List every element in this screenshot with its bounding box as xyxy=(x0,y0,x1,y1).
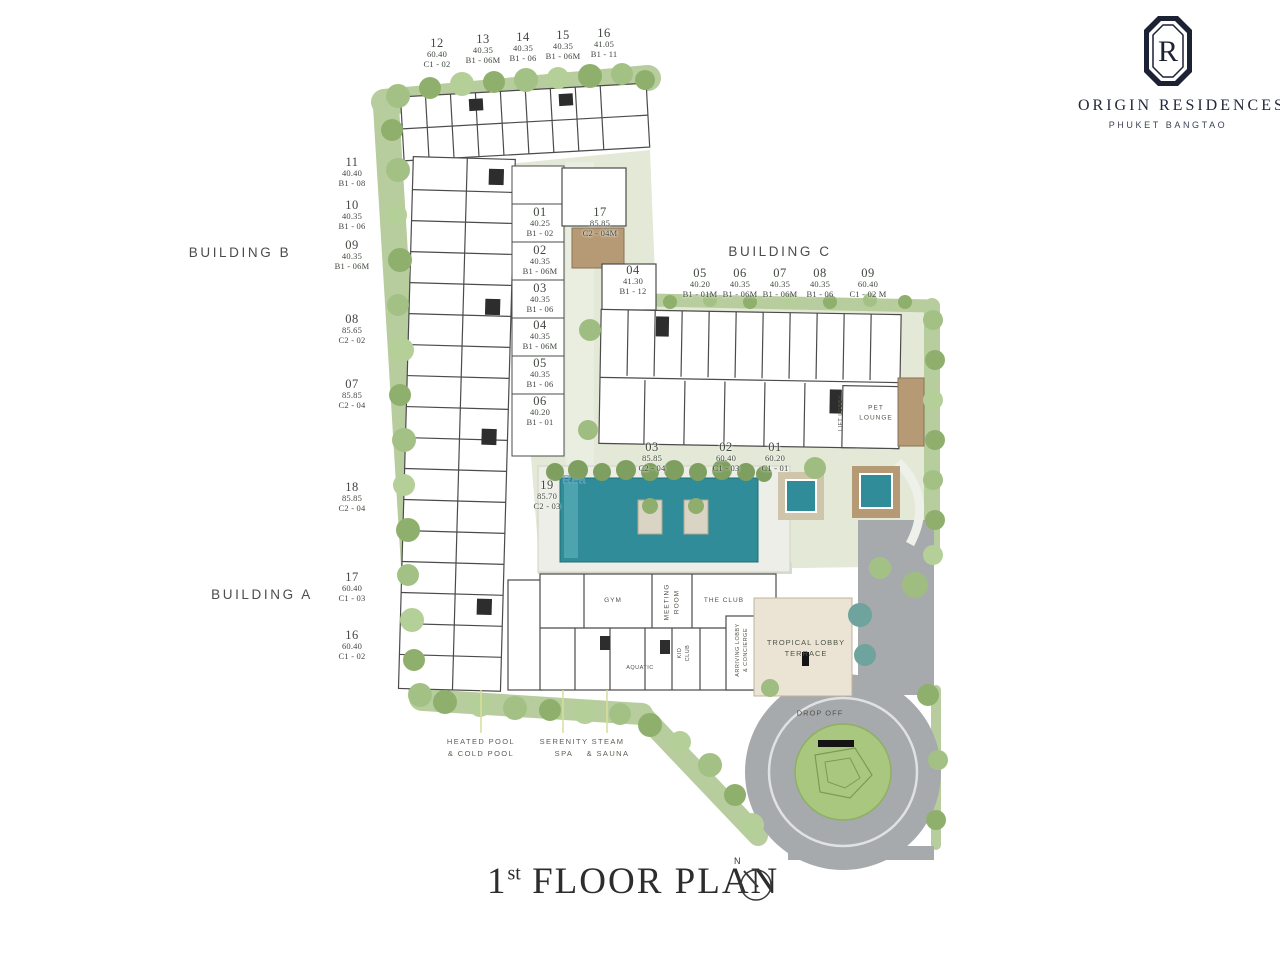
brand-subtitle: PHUKET BANGTAO xyxy=(1078,120,1258,130)
floor-plan-page: 12 60.40 C1 - 02 13 40.35 B1 - 06M 14 40… xyxy=(0,0,1280,960)
building-a-label: BUILDING A xyxy=(211,587,313,602)
aquatic-label: AQUATIC xyxy=(626,664,654,672)
lift-lobby-label: LIFT LOBBY xyxy=(837,395,845,431)
kid-club-label: KID CLUB xyxy=(676,645,693,662)
steam-sauna-label: STEAM & SAUNA xyxy=(587,736,630,760)
plunge-pool xyxy=(786,480,816,512)
watermark: Rea xyxy=(562,472,586,487)
drop-off-island xyxy=(795,724,891,820)
unit-label-top-12: 12 60.40 C1 - 02 xyxy=(424,36,451,69)
tropical-lobby-label: TROPICAL LOBBY TERRACE xyxy=(767,637,845,660)
brand-logo: R ORIGIN RESIDENCES PHUKET BANGTAO xyxy=(1078,16,1258,130)
unit-label-left-18: 18 85.85 C2 - 04 xyxy=(339,480,366,513)
logo-letter: R xyxy=(1158,35,1178,68)
gym-label: GYM xyxy=(604,596,622,606)
unit-label-top-13: 13 40.35 B1 - 06M xyxy=(466,32,501,65)
unit-label-19: 19 85.70 C2 - 03 xyxy=(534,478,561,511)
unit-label-top-14: 14 40.35 B1 - 06 xyxy=(510,30,537,63)
pet-lounge-label: PET LOUNGE xyxy=(859,403,892,423)
unit-label-c-06: 06 40.35 B1 - 06M xyxy=(723,266,758,299)
unit-label-top-15: 15 40.35 B1 - 06M xyxy=(546,28,581,61)
heated-pool-label: HEATED POOL & COLD POOL xyxy=(447,736,515,760)
unit-label-left-07: 07 85.85 C2 - 04 xyxy=(339,377,366,410)
unit-label-center-03: 03 40.35 B1 - 06 xyxy=(527,281,554,314)
unit-label-pool-02: 02 60.40 C1 - 03 xyxy=(713,440,740,473)
unit-label-center-04: 04 40.35 B1 - 06M xyxy=(523,318,558,351)
brand-name: ORIGIN RESIDENCES xyxy=(1078,97,1258,115)
the-club-label: THE CLUB xyxy=(704,596,744,606)
serenity-spa-label: SERENITY SPA xyxy=(540,736,589,760)
meeting-room-label: MEETING ROOM xyxy=(662,584,682,621)
north-arrow-icon xyxy=(731,856,777,904)
unit-label-pool-03: 03 85.85 C2 - 04 xyxy=(639,440,666,473)
unit-label-left-17: 17 60.40 C1 - 03 xyxy=(339,570,366,603)
unit-label-04-b112: 04 41.30 B1 - 12 xyxy=(620,263,647,296)
arriving-lobby-label: ARRIVING LOBBY & CONCIERGE xyxy=(734,623,751,676)
unit-label-left-16: 16 60.40 C1 - 02 xyxy=(339,628,366,661)
unit-label-pool-01: 01 60.20 C1 - 01 xyxy=(762,440,789,473)
unit-label-left-08: 08 85.65 C2 - 02 xyxy=(339,312,366,345)
logo-emblem-icon: R xyxy=(1144,16,1192,86)
building-b-label: BUILDING B xyxy=(189,245,292,260)
unit-label-left-11: 11 40.40 B1 - 08 xyxy=(339,155,366,188)
unit-label-left-09: 09 40.35 B1 - 06M xyxy=(335,238,370,271)
unit-label-c-05: 05 40.20 B1 - 01M xyxy=(683,266,718,299)
unit-label-center-01: 01 40.25 B1 - 02 xyxy=(527,205,554,238)
drop-off-label: DROP OFF xyxy=(797,707,844,718)
unit-label-c-07: 07 40.35 B1 - 06M xyxy=(763,266,798,299)
building-c-label: BUILDING C xyxy=(728,244,831,259)
unit-label-center-05: 05 40.35 B1 - 06 xyxy=(527,356,554,389)
building-c-deck xyxy=(898,378,924,446)
unit-label-center-06: 06 40.20 B1 - 01 xyxy=(527,394,554,427)
unit-label-center-02: 02 40.35 B1 - 06M xyxy=(523,243,558,276)
building-c xyxy=(599,309,901,448)
unit-label-left-10: 10 40.35 B1 - 06 xyxy=(339,198,366,231)
unit-label-c-08: 08 40.35 B1 - 06 xyxy=(807,266,834,299)
unit-label-c-09: 09 60.40 C1 - 02 M xyxy=(850,266,887,299)
unit-label-top-16: 16 41.05 B1 - 11 xyxy=(591,26,618,59)
unit-label-17-center: 17 85.85 C2 - 04M xyxy=(583,205,618,238)
jacuzzi-pool xyxy=(860,474,892,508)
north-arrow: N xyxy=(731,856,777,904)
site-plan-drawing xyxy=(0,0,1280,960)
